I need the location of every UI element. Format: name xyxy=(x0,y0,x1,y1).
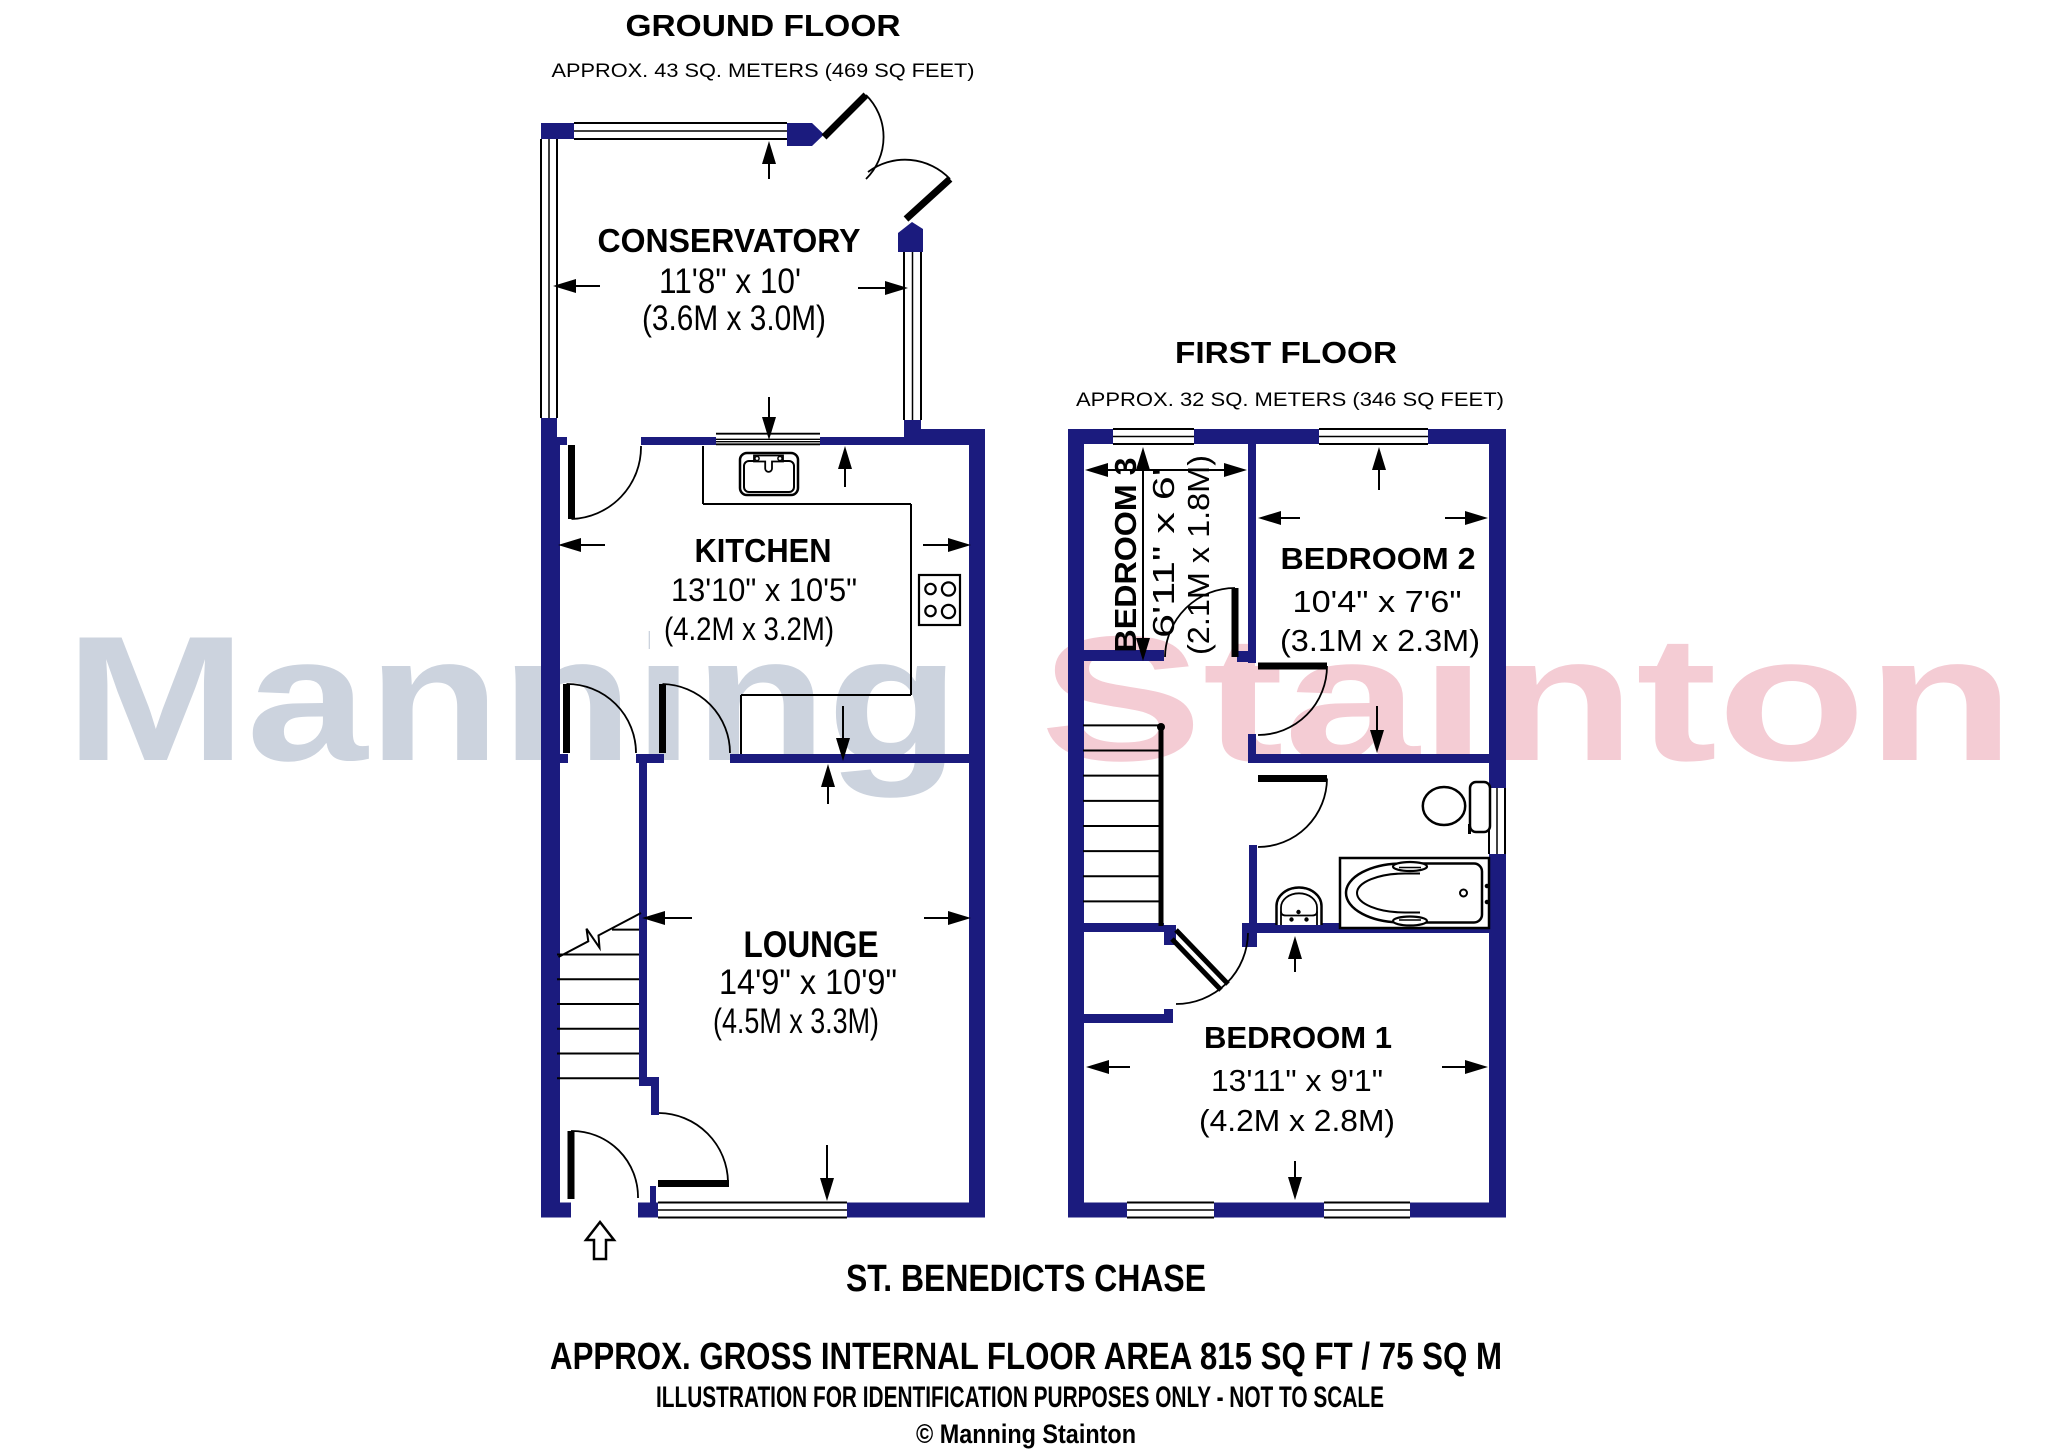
svg-text:(3.1M x 2.3M): (3.1M x 2.3M) xyxy=(1280,623,1480,658)
svg-text:KITCHEN: KITCHEN xyxy=(695,532,832,569)
svg-text:APPROX. 32 SQ. METERS (346 SQ: APPROX. 32 SQ. METERS (346 SQ FEET) xyxy=(1076,390,1504,411)
svg-text:ILLUSTRATION FOR IDENTIFICATIO: ILLUSTRATION FOR IDENTIFICATION PURPOSES… xyxy=(656,1381,1384,1414)
svg-text:6'11" x 6': 6'11" x 6' xyxy=(1146,468,1181,638)
svg-text:FIRST FLOOR: FIRST FLOOR xyxy=(1175,335,1397,370)
svg-text:(4.2M x 3.2M): (4.2M x 3.2M) xyxy=(664,611,834,647)
svg-text:(3.6M x 3.0M): (3.6M x 3.0M) xyxy=(642,299,826,338)
svg-text:(4.2M x 2.8M): (4.2M x 2.8M) xyxy=(1199,1103,1395,1138)
svg-text:CONSERVATORY: CONSERVATORY xyxy=(598,222,861,259)
svg-text:APPROX. 43 SQ. METERS (469 SQ: APPROX. 43 SQ. METERS (469 SQ FEET) xyxy=(552,61,975,82)
svg-text:13'10" x 10'5": 13'10" x 10'5" xyxy=(671,572,857,608)
svg-text:BEDROOM 2: BEDROOM 2 xyxy=(1281,541,1476,576)
svg-text:13'11" x 9'1": 13'11" x 9'1" xyxy=(1211,1063,1383,1098)
svg-text:10'4" x 7'6": 10'4" x 7'6" xyxy=(1293,584,1462,619)
svg-text:LOUNGE: LOUNGE xyxy=(744,924,879,965)
svg-text:GROUND FLOOR: GROUND FLOOR xyxy=(626,8,901,43)
svg-text:11'8" x 10': 11'8" x 10' xyxy=(659,262,801,301)
svg-text:14'9" x 10'9": 14'9" x 10'9" xyxy=(719,963,897,1002)
svg-text:(4.5M x 3.3M): (4.5M x 3.3M) xyxy=(713,1002,879,1041)
svg-text:© Manning Stainton: © Manning Stainton xyxy=(916,1419,1136,1449)
svg-text:BEDROOM 1: BEDROOM 1 xyxy=(1204,1020,1392,1055)
svg-text:(2.1M x 1.8M): (2.1M x 1.8M) xyxy=(1181,455,1216,655)
svg-text:APPROX. GROSS INTERNAL FLOOR A: APPROX. GROSS INTERNAL FLOOR AREA 815 SQ… xyxy=(550,1336,1502,1378)
svg-text:ST. BENEDICTS CHASE: ST. BENEDICTS CHASE xyxy=(846,1258,1206,1300)
svg-text:BEDROOM 3: BEDROOM 3 xyxy=(1108,458,1143,653)
